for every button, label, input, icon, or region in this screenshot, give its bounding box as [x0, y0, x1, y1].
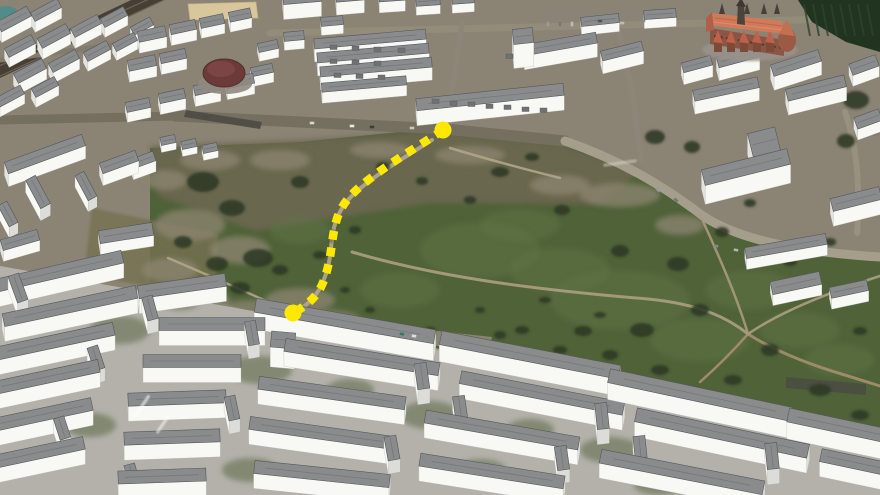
building-facade [514, 42, 534, 68]
bush [645, 130, 665, 144]
rooftop-structure [522, 107, 529, 112]
building [118, 468, 206, 495]
bush [491, 167, 509, 177]
map-scene [0, 0, 880, 495]
bush [539, 297, 551, 303]
bush [525, 153, 539, 161]
bush [515, 326, 529, 334]
building-wall [249, 344, 260, 359]
bush [715, 227, 729, 237]
rooftop-structure [504, 105, 511, 110]
bush [594, 312, 606, 318]
car [583, 22, 586, 27]
rooftop-structure [486, 104, 493, 109]
building-wall [229, 419, 240, 434]
grass-patch [760, 312, 840, 348]
bush [219, 200, 245, 216]
rooftop-structure [374, 47, 381, 52]
building [321, 16, 344, 36]
bush [494, 331, 506, 339]
bush [187, 172, 219, 192]
building [595, 402, 610, 444]
building [160, 135, 176, 153]
bush [853, 327, 867, 335]
bush [684, 141, 700, 153]
rooftop-structure [540, 108, 547, 113]
rooftop-structure [468, 102, 475, 107]
dirt-patch [350, 142, 410, 158]
building-facade [379, 0, 405, 13]
bush [174, 236, 192, 248]
rooftop-structure [334, 73, 341, 78]
rooftop-structure [450, 101, 457, 106]
grass-patch [360, 272, 440, 308]
grass-patch [270, 216, 330, 244]
building [765, 442, 780, 484]
bush [724, 375, 742, 385]
building [202, 143, 218, 161]
dirt-patch [250, 150, 310, 170]
car [370, 126, 375, 129]
bush [554, 205, 570, 215]
bush [761, 344, 779, 356]
car [310, 122, 315, 125]
bush [416, 177, 428, 185]
dirt-patch [655, 215, 705, 235]
bush [272, 265, 288, 275]
building [379, 0, 406, 13]
building [416, 0, 441, 15]
rooftop-structure [398, 48, 405, 53]
building [181, 139, 197, 157]
bush [291, 176, 309, 188]
bush [340, 287, 350, 293]
bush [744, 199, 756, 207]
building-wall [597, 428, 609, 444]
bush [574, 326, 592, 336]
building-wall [418, 388, 430, 405]
building [581, 14, 620, 36]
bush [602, 350, 618, 360]
car [598, 20, 603, 23]
route-endpoint-marker-end[interactable] [435, 122, 452, 139]
car [547, 22, 550, 27]
bush [837, 134, 855, 148]
building [143, 355, 241, 383]
rooftop-structure [432, 99, 439, 104]
car [204, 116, 209, 119]
bush [651, 365, 669, 375]
bush [843, 91, 869, 109]
rooftop-structure [506, 54, 513, 59]
car [620, 22, 625, 25]
grass-patch [480, 209, 560, 241]
building [283, 0, 322, 20]
building-facade [143, 368, 241, 383]
bush [691, 304, 709, 316]
building [644, 8, 677, 28]
building-facade [337, 0, 365, 15]
round-hall-dome [207, 61, 235, 77]
building [124, 429, 220, 460]
rooftop-structure [374, 61, 381, 66]
bush [611, 245, 629, 257]
bush [667, 257, 689, 271]
dirt-patch [580, 183, 660, 207]
building [512, 28, 533, 69]
bush [230, 282, 250, 294]
route-endpoint-marker-start[interactable] [285, 305, 302, 322]
car [571, 22, 574, 27]
car [350, 125, 355, 128]
bush [475, 307, 485, 313]
building [452, 0, 475, 13]
bush [809, 384, 831, 396]
rooftop-structure [352, 60, 359, 65]
rooftop-structure [356, 74, 363, 79]
car [559, 22, 562, 27]
bush [365, 307, 375, 313]
grass-patch [805, 344, 875, 376]
bush [206, 257, 228, 271]
car [641, 20, 646, 23]
building-wall [388, 459, 400, 474]
bush [349, 226, 361, 234]
rooftop-structure [330, 59, 337, 64]
map-3d-view[interactable] [0, 0, 880, 495]
rooftop-structure [378, 75, 385, 80]
building [284, 31, 305, 51]
bush [464, 196, 476, 204]
rooftop-structure [330, 45, 337, 50]
bush [851, 410, 869, 420]
bush [630, 323, 654, 337]
rooftop-structure [352, 46, 359, 51]
building-wall [767, 468, 779, 484]
bush [313, 251, 327, 259]
dirt-patch [155, 209, 225, 241]
building [336, 0, 365, 15]
car [410, 127, 415, 130]
bush [243, 249, 273, 267]
